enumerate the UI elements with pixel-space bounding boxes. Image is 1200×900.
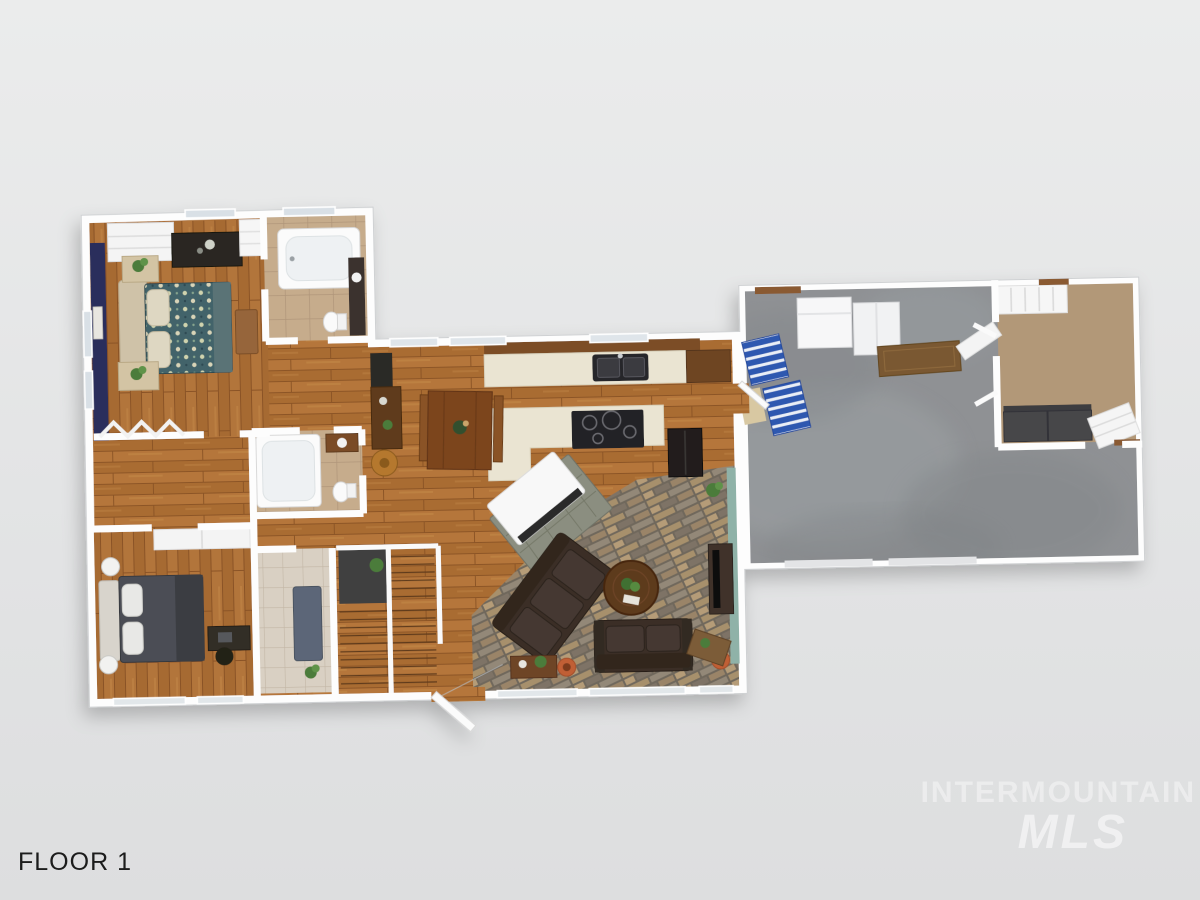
shower-basin <box>262 440 315 501</box>
window <box>84 371 93 409</box>
headboard <box>99 581 121 661</box>
toilet <box>323 312 346 332</box>
floor-lamp <box>101 558 119 576</box>
dining-table <box>419 391 503 470</box>
nightstand <box>122 256 159 283</box>
kitchen-sink <box>592 353 649 382</box>
nightstand <box>118 362 159 391</box>
bonus-couch <box>1003 404 1092 442</box>
shelf-unit <box>997 285 1068 314</box>
floor-lamp <box>99 656 117 674</box>
watermark-brand: INTERMOUNTAIN <box>921 776 1196 809</box>
window <box>390 338 438 347</box>
window <box>83 311 92 357</box>
window <box>589 687 685 696</box>
staircase <box>338 548 437 694</box>
pillow <box>122 584 143 616</box>
vanity <box>348 257 366 335</box>
floor-label: FLOOR 1 <box>18 848 132 876</box>
watermark-mls: MLS <box>1018 806 1128 859</box>
bed2 <box>99 575 205 663</box>
pillow <box>147 289 170 325</box>
throw-blanket <box>213 282 233 372</box>
pantry-cabinet <box>686 350 731 383</box>
terracotta-pot <box>558 658 576 676</box>
bathtub-basin <box>286 236 353 281</box>
stair-railing <box>388 549 391 693</box>
cooktop <box>571 410 644 449</box>
screenshot-canvas: FLOOR 1 INTERMOUNTAIN MLS <box>0 0 1200 900</box>
refrigerator <box>668 428 703 477</box>
garage-top-wood-trim <box>755 286 801 294</box>
media-console <box>708 544 733 614</box>
dining-bench <box>493 396 503 462</box>
window <box>699 686 733 694</box>
pillow <box>123 622 144 654</box>
window <box>283 207 335 216</box>
stair-void <box>338 549 389 604</box>
window <box>450 336 506 345</box>
window <box>197 696 243 704</box>
floor-plan-image: FLOOR 1 INTERMOUNTAIN MLS <box>0 0 1200 900</box>
window <box>590 333 648 342</box>
tv-screen <box>712 550 720 608</box>
round-coffee-table <box>604 560 659 615</box>
window <box>185 209 235 218</box>
sofa-bottom <box>594 619 693 673</box>
freezer-appliance <box>797 297 852 348</box>
bonus-top-wood-trim <box>1039 279 1069 286</box>
dresser <box>172 232 243 267</box>
wall-art <box>93 307 103 339</box>
window <box>497 689 577 698</box>
runner-rug <box>293 586 323 661</box>
throw-blanket <box>175 575 205 662</box>
door-mat-brown <box>877 341 961 377</box>
window <box>113 697 185 706</box>
foot-bench <box>235 310 258 354</box>
console-table <box>511 655 557 678</box>
